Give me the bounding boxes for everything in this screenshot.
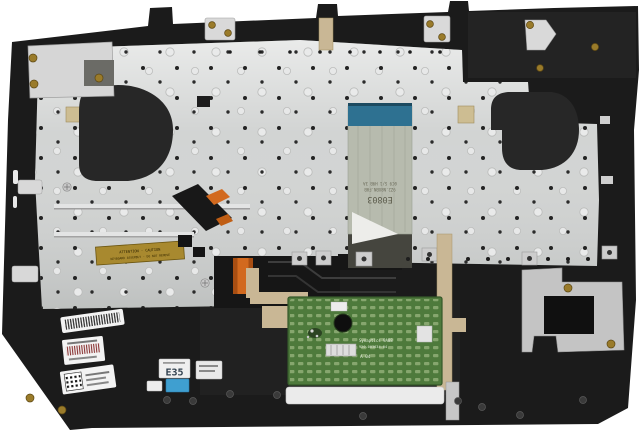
brass-screw bbox=[607, 340, 615, 348]
brass-screw bbox=[26, 394, 34, 402]
top-bracket-right bbox=[424, 16, 450, 42]
foil-cutout bbox=[544, 296, 594, 334]
plate-black-mark bbox=[197, 96, 210, 107]
right-fan-cover bbox=[491, 92, 579, 170]
brass-screw bbox=[209, 22, 216, 29]
orange-flex-edge bbox=[233, 258, 238, 294]
inventory-label bbox=[196, 361, 222, 379]
touchpad-connector bbox=[326, 344, 356, 356]
brass-screw bbox=[537, 65, 544, 72]
edge-slot bbox=[13, 196, 17, 208]
serial-sticker bbox=[62, 336, 105, 365]
brass-screw bbox=[526, 21, 533, 28]
cable-stiffener-edge bbox=[348, 103, 412, 106]
e35-label: E35 bbox=[159, 359, 190, 379]
touchpad-small-label bbox=[331, 302, 347, 311]
brass-screw bbox=[591, 43, 598, 50]
keyboard-ribbon-cable: E0803 9Z2.N8XBN.F0B 0C9 S/1 H9B 3A bbox=[348, 103, 412, 268]
cable-stiffener bbox=[348, 106, 412, 126]
blue-label bbox=[166, 379, 189, 392]
screw-mount bbox=[356, 252, 372, 266]
brass-screw bbox=[29, 54, 37, 62]
screw-mount bbox=[602, 246, 617, 259]
cable-stamp: E0803 bbox=[367, 194, 393, 204]
tan-ribbon-stub bbox=[444, 318, 466, 332]
edge-slot bbox=[13, 170, 18, 184]
touchpad-print-line2: 920-003634-04 bbox=[359, 345, 387, 349]
screw bbox=[274, 392, 281, 399]
screw-mount bbox=[316, 251, 331, 265]
tan-square-sticker bbox=[66, 107, 80, 122]
phillips-screw bbox=[201, 279, 209, 287]
touchpad-lower-strip bbox=[286, 387, 444, 404]
edge-tab bbox=[600, 116, 610, 124]
chassis-top-right bbox=[468, 12, 636, 78]
screw bbox=[164, 397, 171, 404]
screw bbox=[479, 404, 486, 411]
phillips-screw bbox=[63, 183, 71, 191]
plate-ridge-shadow bbox=[54, 236, 194, 238]
side-bracket bbox=[18, 180, 42, 194]
product-photo: ATTENTION - CAUTION KEYBOARD ASSEMBLY - … bbox=[0, 0, 640, 433]
inventory-text-line bbox=[199, 365, 218, 367]
screw bbox=[360, 413, 367, 420]
cable-print-line1: 9Z2.N8XBN.F0B bbox=[364, 187, 396, 192]
brass-screw bbox=[30, 80, 38, 88]
plate-ridge bbox=[54, 232, 194, 236]
left-fan-cover bbox=[79, 85, 173, 181]
solder-dot bbox=[310, 329, 313, 332]
brass-screw bbox=[95, 74, 103, 82]
flex-fold bbox=[193, 247, 205, 257]
cable-print: E0803 9Z2.N8XBN.F0B 0C9 S/1 H9B 3A bbox=[363, 181, 397, 204]
brass-screw bbox=[427, 21, 434, 28]
inventory-text-line bbox=[199, 370, 215, 372]
tan-tab-top bbox=[319, 18, 333, 50]
touchpad-print-line1: Synaptics 9A08 bbox=[359, 338, 393, 343]
screw-mount bbox=[292, 252, 307, 265]
side-bracket bbox=[12, 266, 38, 282]
touchpad-solder-smudge bbox=[308, 328, 322, 338]
brass-screw bbox=[564, 284, 572, 292]
palmrest-assembly-photo: ATTENTION - CAUTION KEYBOARD ASSEMBLY - … bbox=[0, 0, 640, 433]
screw bbox=[455, 398, 462, 405]
screw bbox=[227, 391, 234, 398]
screw bbox=[517, 412, 524, 419]
flex-fold bbox=[178, 235, 192, 247]
qr-code-modules bbox=[65, 373, 82, 390]
e35-small-text-line bbox=[163, 362, 185, 364]
top-bracket-left bbox=[205, 18, 235, 40]
screw bbox=[190, 398, 197, 405]
brass-screw bbox=[439, 34, 446, 41]
touchpad-ic bbox=[334, 314, 352, 332]
screw bbox=[580, 397, 587, 404]
tan-square-sticker bbox=[458, 106, 474, 123]
edge-tab bbox=[601, 176, 613, 184]
brass-screw bbox=[58, 406, 66, 414]
tiny-label bbox=[147, 381, 162, 391]
screw-mount bbox=[522, 252, 537, 265]
solder-dot bbox=[307, 336, 309, 338]
touchpad-module: Synaptics 9A08 920-003634-04 A 04 bbox=[288, 297, 442, 385]
brass-screw bbox=[225, 30, 232, 37]
touchpad-white-pad bbox=[417, 326, 432, 342]
cable-print-line2: 0C9 S/1 H9B 3A bbox=[363, 181, 397, 186]
touchpad-print-line3: A 04 bbox=[360, 354, 371, 360]
e35-label-text: E35 bbox=[165, 368, 183, 379]
solder-dot bbox=[316, 335, 319, 338]
